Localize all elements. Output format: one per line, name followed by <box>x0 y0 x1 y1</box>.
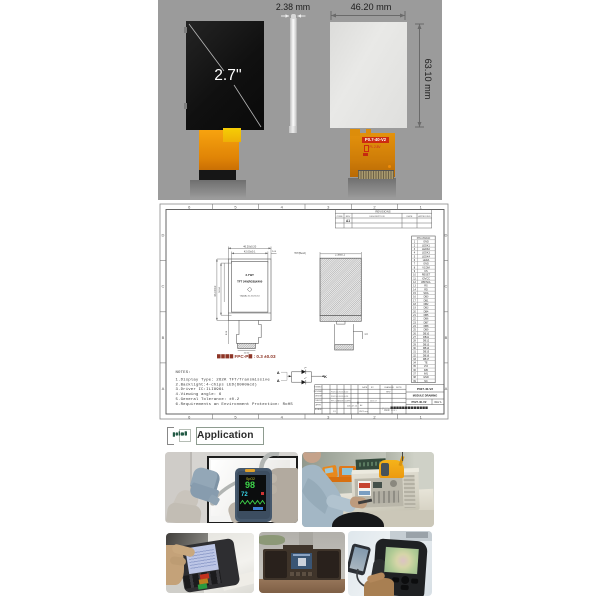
svg-text:K: K <box>324 375 327 379</box>
svg-text:P027-40-V2: P027-40-V2 <box>412 400 427 404</box>
svg-text:DB6: DB6 <box>424 318 429 321</box>
svg-text:P027-40 2015.06.28: P027-40 2015.06.28 <box>331 396 348 398</box>
svg-text:1: 1 <box>420 204 423 209</box>
svg-text:UNIT: mm: UNIT: mm <box>359 411 368 413</box>
svg-text:DATE: DATE <box>362 386 368 389</box>
svg-text:IM0: IM0 <box>424 369 429 372</box>
svg-text:DB12: DB12 <box>423 340 430 343</box>
svg-text:A: A <box>277 379 280 383</box>
svg-text:DB15: DB15 <box>423 351 430 354</box>
svg-text:IM1: IM1 <box>424 373 429 376</box>
svg-text:6: 6 <box>188 204 191 209</box>
svg-text:GND: GND <box>423 241 429 244</box>
svg-text:2.Backlight:4-chips LED(6000mc: 2.Backlight:4-chips LED(6000mcd) <box>176 382 258 387</box>
svg-text:TFT 240(RGB)X400: TFT 240(RGB)X400 <box>237 280 263 284</box>
svg-text:IOVCC: IOVCC <box>422 277 430 280</box>
svg-text:FPC-PI: FPC-PI <box>235 354 250 359</box>
svg-text:D: D <box>162 233 165 238</box>
svg-text:APPR: APPR <box>315 404 321 407</box>
svg-text:1.Display Type: 262K TFT/Trans: 1.Display Type: 262K TFT/Transmissive <box>176 377 271 382</box>
svg-text:P027-40-V2: P027-40-V2 <box>417 387 433 391</box>
svg-text:VCOM: VCOM <box>422 266 430 269</box>
svg-text:63.10±0.2: 63.10±0.2 <box>214 285 217 296</box>
svg-text:BY: BY <box>371 387 374 389</box>
svg-text:DB8: DB8 <box>424 325 429 328</box>
svg-text:TE: TE <box>424 362 428 365</box>
svg-text:DATE: DATE <box>407 215 413 218</box>
svg-text:2.7'BT: 2.7'BT <box>246 273 255 277</box>
svg-text:VCI: VCI <box>424 365 428 368</box>
svg-text:42.00±0.1: 42.00±0.1 <box>244 250 256 254</box>
svg-text:LEDK3: LEDK3 <box>422 252 431 255</box>
svg-text:DB14: DB14 <box>423 347 430 350</box>
svg-text:NOTES:: NOTES: <box>176 371 191 375</box>
svg-text:P027-40 2015.06.20: P027-40 2015.06.20 <box>331 391 348 393</box>
svg-text:: 0.3 ±0.03: : 0.3 ±0.03 <box>254 354 276 359</box>
svg-text:GND: GND <box>423 376 429 379</box>
svg-text:DESCRIPTION: DESCRIPTION <box>370 216 385 218</box>
svg-text:5.General Tolerance: ±0.2: 5.General Tolerance: ±0.2 <box>176 397 240 402</box>
svg-text:DB1: DB1 <box>424 299 429 302</box>
svg-text:2015.07: 2015.07 <box>370 400 377 402</box>
svg-text:LEDA: LEDA <box>423 259 430 262</box>
svg-text:REVISED: REVISED <box>314 391 323 393</box>
svg-text:CHANGED: CHANGED <box>384 386 395 389</box>
svg-text:B: B <box>445 335 448 340</box>
svg-text:SYMBOL: SYMBOL <box>314 387 323 389</box>
svg-text:1.0: 1.0 <box>364 333 368 336</box>
svg-text:D: D <box>445 233 448 238</box>
svg-text:NOTE: NOTE <box>396 387 402 389</box>
svg-text:DB13: DB13 <box>423 343 430 346</box>
svg-text:RS: RS <box>424 285 428 288</box>
svg-text:DB9: DB9 <box>424 329 429 332</box>
svg-text:APPROVED: APPROVED <box>418 215 431 218</box>
svg-text:SDA: SDA <box>423 292 428 295</box>
svg-text:DB5: DB5 <box>424 314 429 317</box>
svg-text:MODULE DRAWING: MODULE DRAWING <box>413 394 438 398</box>
svg-text:A1: A1 <box>346 219 350 223</box>
svg-text:P&W: P&W <box>382 407 389 411</box>
svg-text:DB7: DB7 <box>424 321 429 324</box>
svg-text:REV: REV <box>346 216 351 218</box>
svg-text:A: A <box>357 401 359 405</box>
svg-text:8.09: 8.09 <box>226 330 228 335</box>
svg-text:C: C <box>162 284 165 289</box>
svg-text:CHECK: CHECK <box>315 400 323 402</box>
svg-text:2015.07.14: 2015.07.14 <box>347 406 358 408</box>
svg-text:A4: A4 <box>360 404 362 407</box>
svg-text:DB11: DB11 <box>423 336 430 339</box>
svg-text:LEDK1: LEDK1 <box>422 244 431 247</box>
svg-text:REV A: REV A <box>434 401 441 404</box>
svg-text:4.Viewing angle: 6: 4.Viewing angle: 6 <box>176 392 222 397</box>
svg-text:RESET: RESET <box>422 274 431 277</box>
svg-text:NC: NC <box>424 380 428 383</box>
svg-text:2.38±0.2: 2.38±0.2 <box>335 253 346 257</box>
svg-text:DB16: DB16 <box>423 354 430 357</box>
svg-text:A: A <box>277 371 280 375</box>
svg-text:CS: CS <box>424 270 428 273</box>
svg-text:B: B <box>162 335 165 340</box>
svg-text:3: 3 <box>327 204 330 209</box>
svg-text:56.64: 56.64 <box>219 286 221 292</box>
svg-text:DB0: DB0 <box>424 296 429 299</box>
svg-text:A: A <box>162 386 165 391</box>
svg-text:DB10: DB10 <box>423 332 430 335</box>
svg-text:DESIGN: DESIGN <box>314 396 322 398</box>
svg-text:REVISIONS: REVISIONS <box>375 210 390 214</box>
svg-text:WR/SCL: WR/SCL <box>421 281 431 284</box>
svg-text:DB4: DB4 <box>424 310 429 313</box>
svg-text:LEDK4: LEDK4 <box>422 255 431 258</box>
svg-text:ZONE: ZONE <box>337 216 344 218</box>
svg-text:PIN ASSIGN: PIN ASSIGN <box>417 237 431 240</box>
svg-text:6.Requirements an Environment: 6.Requirements an Environment Protection… <box>176 402 294 407</box>
svg-text:DB17: DB17 <box>423 358 430 361</box>
svg-text:1/1: 1/1 <box>333 411 337 413</box>
svg-text:LEDK2: LEDK2 <box>422 248 431 251</box>
svg-text:SCALE: SCALE <box>315 408 322 411</box>
svg-text:5: 5 <box>234 204 237 209</box>
svg-text:46.20±0.20: 46.20±0.20 <box>243 245 257 249</box>
svg-text:FPC CHANGED 40PIN: FPC CHANGED 40PIN <box>331 399 351 402</box>
svg-text:DB3: DB3 <box>424 307 429 310</box>
svg-text:A: A <box>445 386 448 391</box>
svg-text:VA(AA) 40.32x56.64: VA(AA) 40.32x56.64 <box>240 295 261 298</box>
svg-text:NEW: NEW <box>386 391 391 393</box>
svg-text:3.Driver IC:ILI8961: 3.Driver IC:ILI8961 <box>176 387 225 392</box>
svg-text:TFT(Bend): TFT(Bend) <box>294 252 306 255</box>
svg-text:4: 4 <box>281 204 284 209</box>
svg-text:GND: GND <box>423 263 429 266</box>
svg-text:DB2: DB2 <box>424 303 429 306</box>
svg-text:RD: RD <box>424 288 428 291</box>
svg-text:C: C <box>445 284 448 289</box>
svg-text:2.00: 2.00 <box>272 251 277 253</box>
